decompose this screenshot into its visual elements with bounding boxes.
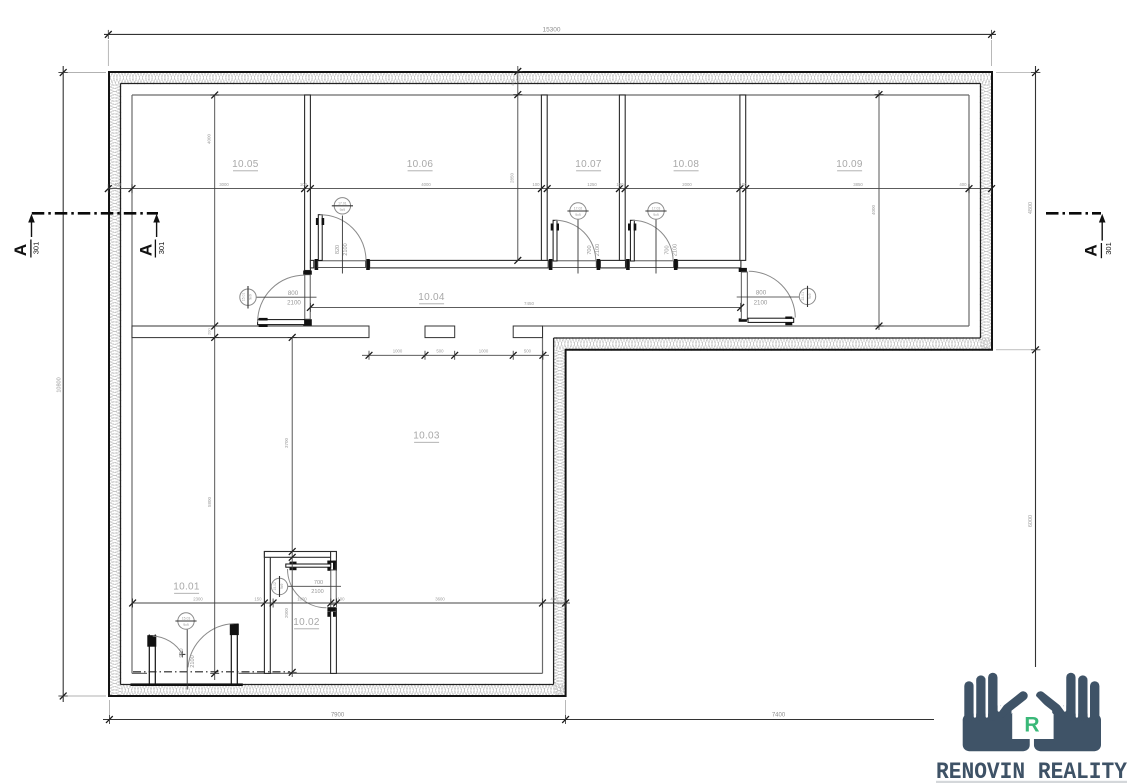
svg-text:500: 500 xyxy=(524,349,532,354)
svg-text:9x9: 9x9 xyxy=(808,293,812,299)
svg-text:2100: 2100 xyxy=(287,300,301,307)
svg-text:400: 400 xyxy=(959,182,967,187)
svg-text:100: 100 xyxy=(616,182,624,187)
svg-text:700: 700 xyxy=(587,245,593,254)
svg-text:1000: 1000 xyxy=(297,596,307,601)
svg-text:5800: 5800 xyxy=(207,496,212,507)
svg-text:2100: 2100 xyxy=(190,655,196,667)
svg-text:400: 400 xyxy=(510,78,515,85)
svg-text:10.03: 10.03 xyxy=(413,431,440,442)
svg-text:800: 800 xyxy=(756,290,767,297)
svg-text:15.03: 15.03 xyxy=(182,617,191,621)
svg-text:10.01: 10.01 xyxy=(173,582,200,593)
svg-text:7400: 7400 xyxy=(772,713,786,719)
svg-text:700: 700 xyxy=(665,245,671,254)
svg-text:3850: 3850 xyxy=(853,182,863,187)
svg-text:10.05: 10.05 xyxy=(232,159,259,170)
svg-text:17.01: 17.01 xyxy=(338,201,347,205)
svg-text:1250: 1250 xyxy=(587,182,597,187)
svg-text:900: 900 xyxy=(179,648,185,657)
svg-text:2100: 2100 xyxy=(754,299,768,306)
svg-text:22.01: 22.01 xyxy=(801,292,805,301)
svg-text:9x9: 9x9 xyxy=(249,294,253,300)
svg-text:9x9: 9x9 xyxy=(340,208,346,212)
svg-text:9x9: 9x9 xyxy=(280,583,284,589)
svg-text:10.07: 10.07 xyxy=(575,159,602,170)
svg-text:2000: 2000 xyxy=(284,607,289,618)
svg-text:3000: 3000 xyxy=(219,182,229,187)
svg-text:2100: 2100 xyxy=(343,243,349,255)
svg-text:4000: 4000 xyxy=(207,133,212,144)
svg-text:9x9: 9x9 xyxy=(183,623,189,627)
svg-text:9x9: 9x9 xyxy=(575,213,581,217)
svg-text:800: 800 xyxy=(288,290,299,297)
svg-text:A: A xyxy=(1081,244,1100,256)
svg-text:100: 100 xyxy=(337,596,345,601)
svg-text:10.04: 10.04 xyxy=(418,292,445,303)
svg-text:10.06: 10.06 xyxy=(407,159,434,170)
svg-text:2100: 2100 xyxy=(311,589,323,595)
svg-text:15300: 15300 xyxy=(542,27,560,34)
svg-text:2000: 2000 xyxy=(682,182,692,187)
svg-text:500: 500 xyxy=(436,349,444,354)
svg-text:1000: 1000 xyxy=(479,349,489,354)
svg-text:4000: 4000 xyxy=(871,204,876,215)
svg-text:3600: 3600 xyxy=(435,596,445,601)
svg-text:700: 700 xyxy=(314,580,323,586)
svg-text:15.01: 15.01 xyxy=(242,293,246,302)
svg-text:A: A xyxy=(11,244,30,256)
svg-text:301: 301 xyxy=(31,242,40,255)
svg-text:17.02: 17.02 xyxy=(574,207,583,211)
svg-text:3700: 3700 xyxy=(284,437,289,448)
svg-text:2100: 2100 xyxy=(673,244,679,256)
svg-text:150: 150 xyxy=(254,596,262,601)
svg-text:4800: 4800 xyxy=(1028,202,1034,214)
svg-text:15.02: 15.02 xyxy=(273,582,277,591)
svg-text:2300: 2300 xyxy=(193,596,203,601)
svg-text:820: 820 xyxy=(335,245,341,254)
svg-text:10.09: 10.09 xyxy=(836,159,863,170)
svg-text:400: 400 xyxy=(550,596,558,601)
svg-text:1000: 1000 xyxy=(393,349,403,354)
svg-text:301: 301 xyxy=(157,242,166,255)
svg-text:10.02: 10.02 xyxy=(293,617,320,628)
svg-text:200: 200 xyxy=(207,328,212,335)
svg-text:100: 100 xyxy=(300,182,308,187)
svg-text:4000: 4000 xyxy=(421,182,431,187)
svg-text:RENOVIN REALITY: RENOVIN REALITY xyxy=(936,759,1127,783)
svg-text:10.08: 10.08 xyxy=(673,159,700,170)
svg-text:6000: 6000 xyxy=(1028,515,1034,527)
svg-text:2100: 2100 xyxy=(595,244,601,256)
svg-text:100: 100 xyxy=(739,182,747,187)
svg-text:7450: 7450 xyxy=(524,301,535,306)
svg-text:400: 400 xyxy=(114,182,122,187)
svg-text:R: R xyxy=(1024,714,1039,737)
svg-text:10800: 10800 xyxy=(57,377,63,392)
svg-text:9x9: 9x9 xyxy=(653,213,659,217)
svg-text:7900: 7900 xyxy=(331,713,345,719)
svg-text:2850: 2850 xyxy=(510,172,515,183)
svg-text:A: A xyxy=(136,244,155,256)
svg-text:100: 100 xyxy=(532,182,540,187)
svg-text:17.03: 17.03 xyxy=(652,207,661,211)
svg-text:301: 301 xyxy=(1104,242,1113,255)
